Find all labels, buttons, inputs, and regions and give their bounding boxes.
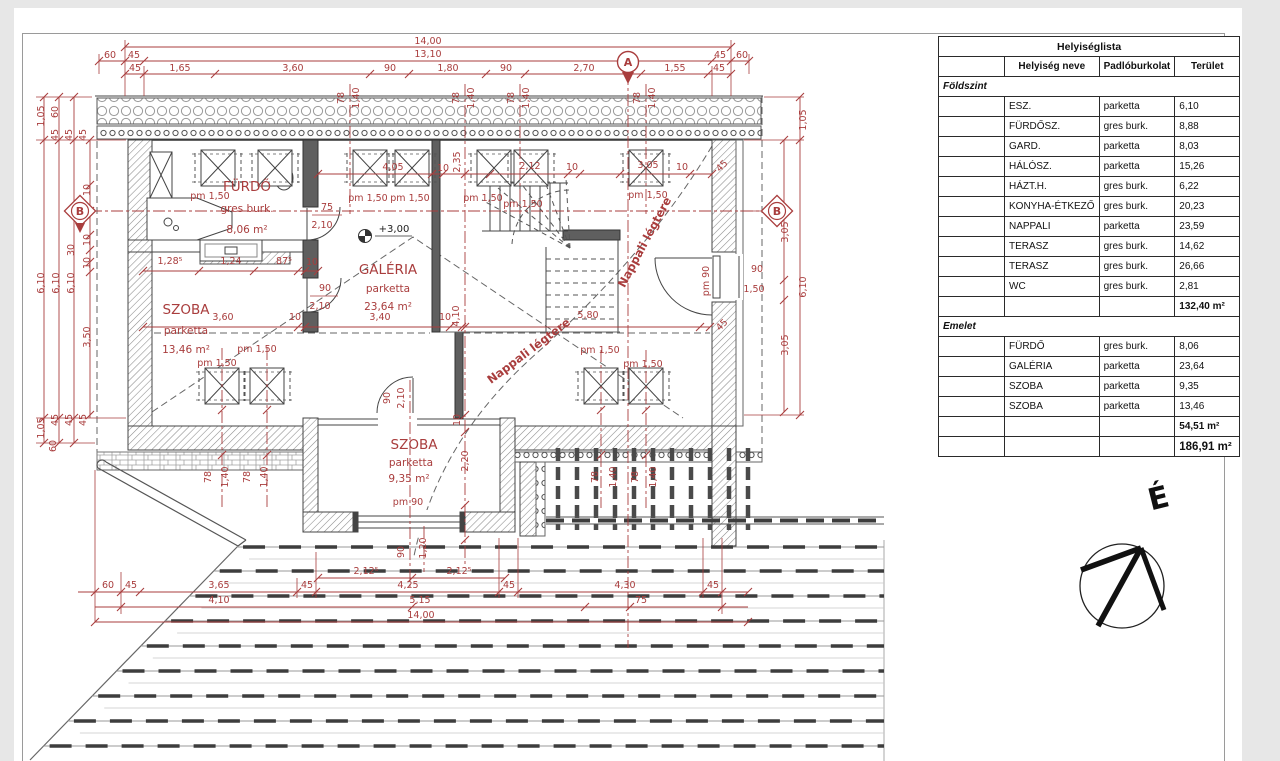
room-name-label: GALÉRIA: [359, 261, 418, 278]
room-name-label: SZOBA: [391, 437, 439, 453]
dimension-label: 78: [630, 471, 641, 483]
dimension-label: 10: [676, 162, 688, 173]
dimension-label: 1,40: [647, 87, 658, 108]
table-row: FÜRDŐgres burk.8,06: [939, 337, 1240, 357]
section-marker-letter: B: [773, 205, 781, 218]
table-cell: [1099, 417, 1175, 437]
dimension-label: 1,55: [664, 63, 685, 74]
dimension-label: 2,12: [519, 161, 540, 172]
section-header: Földszint: [939, 77, 1240, 97]
area-value: 26,66: [1175, 257, 1240, 277]
table-row: ESZ.parketta6,10: [939, 97, 1240, 117]
dimension-label: 78: [203, 471, 214, 483]
dimension-label: 45: [78, 414, 89, 426]
dimension-label: 90: [396, 546, 407, 558]
dimension-label: 5,80: [577, 310, 598, 321]
dimension-label: pm 1,50: [623, 359, 662, 370]
room-name: NAPPALI: [1005, 217, 1100, 237]
dimension-label: 14,00: [414, 36, 441, 47]
table-row: Emelet: [939, 317, 1240, 337]
dimension-label: 3,05: [780, 221, 791, 242]
table-cell: [1099, 297, 1175, 317]
dimension-label: 90: [751, 264, 763, 275]
section-header: Emelet: [939, 317, 1240, 337]
dimension-label: 1,40: [351, 87, 362, 108]
table-row: Földszint: [939, 77, 1240, 97]
dimension-label: 78: [590, 471, 601, 483]
dimension-label: 2,10: [309, 301, 330, 312]
dimension-label: 45: [714, 50, 726, 61]
helyiseglista-table: HelyiséglistaHelyiség nevePadlóburkolatT…: [938, 36, 1240, 457]
area-value: 23,59: [1175, 217, 1240, 237]
area-value: 20,23: [1175, 197, 1240, 217]
table-row: TERASZgres burk.14,62: [939, 237, 1240, 257]
north-arrow: [1080, 544, 1164, 628]
section-marker-letter: A: [624, 56, 633, 69]
dimension-label: 45: [78, 129, 89, 141]
column-header: Helyiség neve: [1005, 57, 1100, 77]
dimension-label: pm 90: [393, 497, 423, 508]
column-header: Terület: [1175, 57, 1240, 77]
table-row: TERASZgres burk.26,66: [939, 257, 1240, 277]
dimension-label: 1,20: [418, 537, 429, 558]
dimension-label: 10: [306, 257, 318, 268]
table-cell: [1005, 437, 1100, 457]
dimension-label: pm 1,50: [197, 358, 236, 369]
dimension-label: 3,50: [82, 326, 93, 347]
table-cell: [939, 437, 1005, 457]
dimension-label: pm 1,50: [503, 199, 542, 210]
table-row: FÜRDŐSZ.gres burk.8,88: [939, 117, 1240, 137]
table-cell: [939, 117, 1005, 137]
dimension-label: 90: [500, 63, 512, 74]
room-name-label: FÜRDŐ: [223, 177, 271, 195]
table-cell: [939, 417, 1005, 437]
dimension-label: 1,40: [259, 466, 270, 487]
dimension-label: 60: [104, 50, 116, 61]
dimension-label: 60: [50, 106, 61, 118]
floor-finish: parketta: [1099, 137, 1175, 157]
floor-finish: gres burk.: [1099, 277, 1175, 297]
column-header: Padlóburkolat: [1099, 57, 1175, 77]
table-row: WCgres burk.2,81: [939, 277, 1240, 297]
dimension-label: 10: [437, 163, 449, 174]
dimension-label: 6,10: [798, 276, 809, 297]
section-subtotal: 132,40 m²: [1175, 297, 1240, 317]
room-name-label: SZOBA: [163, 302, 211, 318]
table-cell: [939, 157, 1005, 177]
area-value: 8,06: [1175, 337, 1240, 357]
table-cell: [939, 297, 1005, 317]
dimension-label: 45: [129, 63, 141, 74]
area-value: 14,62: [1175, 237, 1240, 257]
dimension-label: 4,05: [382, 162, 403, 173]
floor-finish: parketta: [1099, 157, 1175, 177]
floor-finish: gres burk.: [1099, 337, 1175, 357]
floor-finish: gres burk.: [1099, 177, 1175, 197]
section-marker-letter: B: [76, 205, 84, 218]
dimension-label: parketta: [366, 283, 410, 295]
dimension-label: 45: [503, 580, 515, 591]
floor-finish: gres burk.: [1099, 237, 1175, 257]
dimension-label: 2,35: [452, 151, 463, 172]
dimension-label: 10: [82, 257, 93, 269]
dimension-label: 3,40: [369, 312, 390, 323]
dimension-label: 1,40: [521, 87, 532, 108]
roof-edge: [30, 460, 884, 761]
dimension-label: Nappali légtere: [484, 315, 573, 387]
dimension-label: 78: [242, 471, 253, 483]
dimension-label: 1,05: [798, 109, 809, 130]
dimension-label: pm 1,50: [237, 344, 276, 355]
table-cell: [1099, 437, 1175, 457]
dimension-label: pm 1,50: [580, 345, 619, 356]
dimension-label: 10: [452, 414, 463, 426]
dimension-label: 1,40: [220, 466, 231, 487]
table-cell: [939, 277, 1005, 297]
area-value: 23,64: [1175, 357, 1240, 377]
table-row: SZOBAparketta9,35: [939, 377, 1240, 397]
table-row: KONYHA-ÉTKEZŐgres burk.20,23: [939, 197, 1240, 217]
dimension-label: 78: [506, 92, 517, 104]
dimension-label: +3,00: [379, 224, 410, 235]
dimension-label: 1,40: [608, 466, 619, 487]
dimension-label: 3,60: [282, 63, 303, 74]
table-cell: [939, 377, 1005, 397]
dimension-label: 45: [707, 580, 719, 591]
table-row: SZOBAparketta13,46: [939, 397, 1240, 417]
dimension-label: 6,10: [66, 272, 77, 293]
dimension-label: 23,64 m²: [364, 301, 412, 313]
dimension-label: 1,65: [169, 63, 190, 74]
dimension-label: 1,28⁵: [158, 256, 183, 267]
dimension-label: 1,24: [220, 256, 241, 267]
dimension-label: 10: [289, 312, 301, 323]
page: { "page":{"background":"#e7e7e7","sheet_…: [0, 0, 1280, 761]
room-name: FÜRDŐ: [1005, 337, 1100, 357]
room-name: FÜRDŐSZ.: [1005, 117, 1100, 137]
dimension-label: 60: [102, 580, 114, 591]
floor-finish: parketta: [1099, 357, 1175, 377]
dimension-label: 4,10: [208, 595, 229, 606]
dimension-label: pm 1,50: [390, 193, 429, 204]
table-cell: [939, 177, 1005, 197]
dimension-label: 45: [50, 414, 61, 426]
table-cell: [939, 237, 1005, 257]
dimension-label: 78: [336, 92, 347, 104]
area-value: 15,26: [1175, 157, 1240, 177]
dimension-label: parketta: [164, 325, 208, 337]
area-value: 8,03: [1175, 137, 1240, 157]
dimension-label: 45: [50, 129, 61, 141]
dimension-label: 1,40: [648, 466, 659, 487]
dimension-label: 2,20: [460, 450, 471, 471]
dimension-label: 2,10: [311, 220, 332, 231]
north-label: É: [1144, 478, 1173, 518]
dimension-label: 1,80: [437, 63, 458, 74]
dimension-label: 4,30: [614, 580, 635, 591]
dimension-label: 87⁵: [276, 256, 292, 267]
dimension-label: 3,60: [212, 312, 233, 323]
table-row: Helyiség nevePadlóburkolatTerület: [939, 57, 1240, 77]
floor-finish: parketta: [1099, 217, 1175, 237]
dimension-label: Nappali légtere: [615, 194, 675, 289]
table-row: Helyiséglista: [939, 37, 1240, 57]
dimension-label: 30: [66, 244, 77, 256]
dimension-label: 1,05: [36, 105, 47, 126]
dimension-label: 14,00: [407, 610, 434, 621]
dimension-label: 6,10: [36, 272, 47, 293]
table-row: HÁLÓSZ.parketta15,26: [939, 157, 1240, 177]
table-row: GARD.parketta8,03: [939, 137, 1240, 157]
room-name: TERASZ: [1005, 237, 1100, 257]
table-cell: [939, 197, 1005, 217]
dimension-label: 1,50: [743, 284, 764, 295]
room-name: GALÉRIA: [1005, 357, 1100, 377]
room-name: HÁZT.H.: [1005, 177, 1100, 197]
dimension-label: gres burk.: [220, 203, 273, 215]
table-cell: [939, 137, 1005, 157]
dimension-label: 75: [321, 202, 333, 213]
area-value: 8,88: [1175, 117, 1240, 137]
room-name: ESZ.: [1005, 97, 1100, 117]
dimension-label: 2,10: [396, 387, 407, 408]
dimension-label: 3,05: [780, 334, 791, 355]
table-cell: [1005, 417, 1100, 437]
dimension-label: 9,35 m²: [388, 473, 429, 485]
dimension-label: 4,10: [451, 305, 462, 326]
dimension-label: 60: [48, 440, 59, 452]
area-value: 6,22: [1175, 177, 1240, 197]
dimension-label: 1,40: [466, 87, 477, 108]
dimension-label: 78: [451, 92, 462, 104]
table-cell: [939, 357, 1005, 377]
table-row: GALÉRIAparketta23,64: [939, 357, 1240, 377]
room-list-table: HelyiséglistaHelyiség nevePadlóburkolatT…: [938, 36, 1240, 457]
table-row: 54,51 m²: [939, 417, 1240, 437]
dimension-label: pm 1,50: [348, 193, 387, 204]
table-row: 186,91 m²: [939, 437, 1240, 457]
table-row: NAPPALIparketta23,59: [939, 217, 1240, 237]
dimension-label: 3,05: [637, 160, 658, 171]
table-cell: [939, 337, 1005, 357]
table-row: 132,40 m²: [939, 297, 1240, 317]
dimension-label: 45: [64, 414, 75, 426]
area-value: 2,81: [1175, 277, 1240, 297]
dimension-label: 4,25: [397, 580, 418, 591]
floor-finish: gres burk.: [1099, 257, 1175, 277]
dimension-label: 90: [384, 63, 396, 74]
room-name: GARD.: [1005, 137, 1100, 157]
dimension-label: 13,10: [414, 49, 441, 60]
dimension-label: pm 1,50: [463, 193, 502, 204]
floor-finish: gres burk.: [1099, 197, 1175, 217]
dimension-label: 60: [736, 50, 748, 61]
dimension-label: 10: [566, 162, 578, 173]
room-name: KONYHA-ÉTKEZŐ: [1005, 197, 1100, 217]
dimension-label: 10: [439, 312, 451, 323]
dimension-label: 45: [128, 50, 140, 61]
dimension-label: parketta: [389, 457, 433, 469]
table-cell: [1005, 297, 1100, 317]
area-value: 9,35: [1175, 377, 1240, 397]
dimension-label: 13,46 m²: [162, 344, 210, 356]
dimension-label: 45: [301, 580, 313, 591]
floor-finish: gres burk.: [1099, 117, 1175, 137]
dimension-label: 45: [64, 129, 75, 141]
dimension-label: 2,12⁵: [354, 566, 379, 577]
table-cell: [939, 217, 1005, 237]
floor-finish: parketta: [1099, 97, 1175, 117]
room-name: HÁLÓSZ.: [1005, 157, 1100, 177]
dimension-label: 10: [82, 234, 93, 246]
room-name: SZOBA: [1005, 377, 1100, 397]
table-cell: [939, 257, 1005, 277]
dimension-label: 2,70: [573, 63, 594, 74]
room-name: SZOBA: [1005, 397, 1100, 417]
table-title: Helyiséglista: [939, 37, 1240, 57]
dimension-label: pm 90: [701, 266, 712, 296]
dimension-label: 8,06 m²: [226, 224, 267, 236]
dimension-label: 1,05: [36, 417, 47, 438]
dimension-label: 90: [319, 283, 331, 294]
floor-finish: parketta: [1099, 377, 1175, 397]
table-row: HÁZT.H.gres burk.6,22: [939, 177, 1240, 197]
dimension-label: 6,10: [51, 272, 62, 293]
dimension-label: 78: [632, 92, 643, 104]
dimension-label: 5,15: [409, 595, 430, 606]
dimension-label: 10: [82, 184, 93, 196]
area-value: 6,10: [1175, 97, 1240, 117]
table-cell: [939, 397, 1005, 417]
room-name: WC: [1005, 277, 1100, 297]
dimension-label: 75: [635, 595, 647, 606]
grand-total: 186,91 m²: [1175, 437, 1240, 457]
dimension-label: 2,12⁵: [447, 566, 472, 577]
dimension-label: 45: [713, 63, 725, 74]
area-value: 13,46: [1175, 397, 1240, 417]
room-name: TERASZ: [1005, 257, 1100, 277]
table-cell: [939, 97, 1005, 117]
dimension-label: 3,65: [208, 580, 229, 591]
section-subtotal: 54,51 m²: [1175, 417, 1240, 437]
dimension-label: 90: [382, 392, 393, 404]
dimension-label: 45: [125, 580, 137, 591]
column-header: [939, 57, 1005, 77]
floor-finish: parketta: [1099, 397, 1175, 417]
